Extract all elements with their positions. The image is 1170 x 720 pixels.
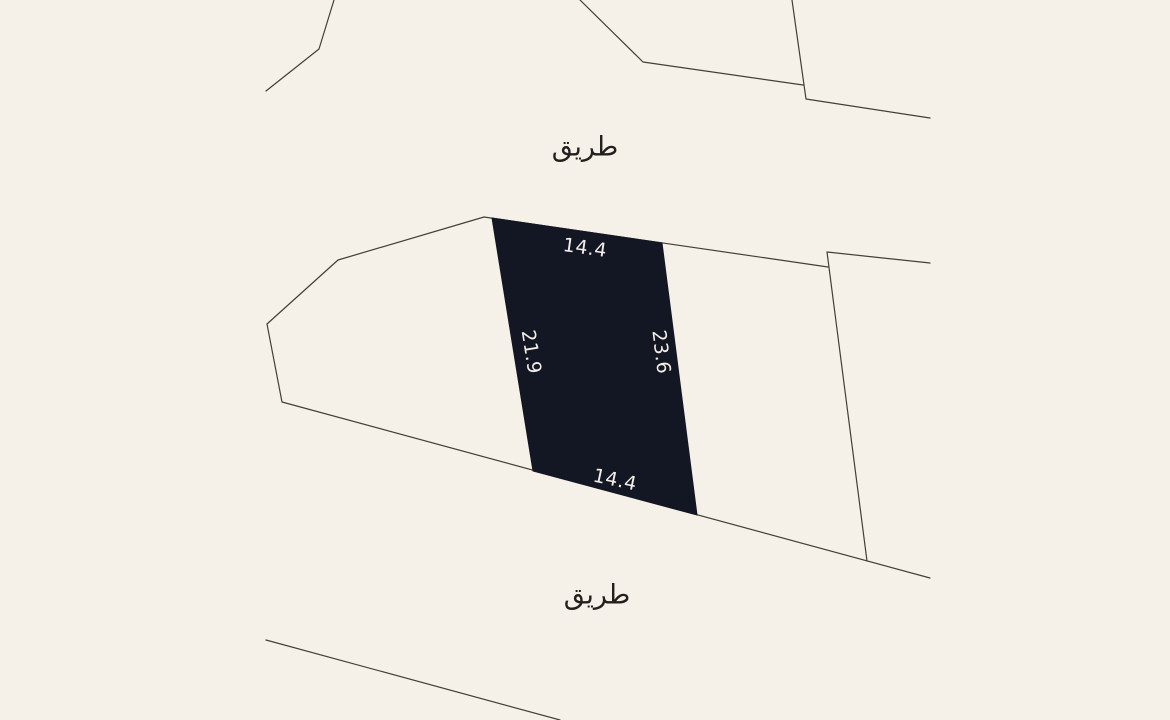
parcel-map-canvas[interactable]: 14.423.614.421.9طريقطريق xyxy=(0,0,1170,720)
right-parcel-right-edge xyxy=(827,252,867,561)
road-label-bottom: طريق xyxy=(564,580,630,611)
boundary-upper-middle xyxy=(580,0,803,85)
parcel-map[interactable]: 14.423.614.421.9طريقطريق xyxy=(0,0,1170,720)
right-block-top-edge xyxy=(827,252,930,263)
boundary-upper-left xyxy=(266,0,334,91)
boundary-lower-left xyxy=(266,640,560,720)
road-label-top: طريق xyxy=(552,132,618,163)
boundary-upper-right xyxy=(792,0,930,118)
